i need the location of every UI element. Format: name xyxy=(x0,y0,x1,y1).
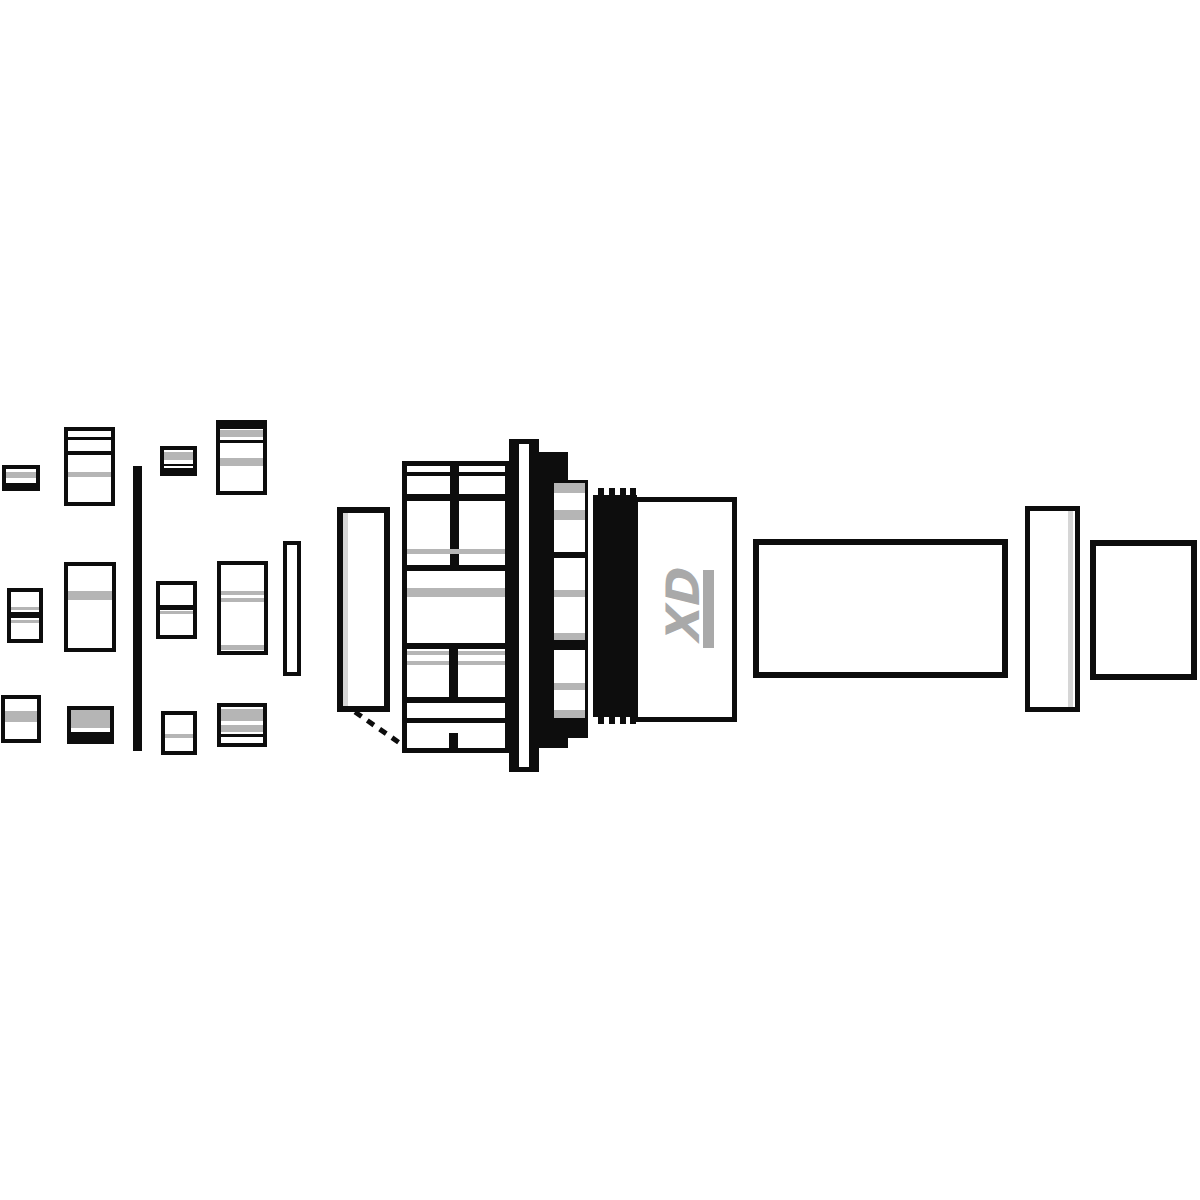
pawl-piece-row2-col1 xyxy=(7,588,43,643)
flange-disc xyxy=(509,439,539,772)
xd-logo-text: XD xyxy=(656,568,710,644)
spline-ratchet-ring xyxy=(539,452,588,748)
pawl-piece-row3-col3 xyxy=(161,711,197,755)
pawl-piece-row2-col4 xyxy=(217,561,268,655)
spacer-ring xyxy=(1025,506,1080,712)
pawl-piece-row3-col4 xyxy=(217,703,267,747)
axle-spacer-tube xyxy=(753,539,1008,678)
thin-washer-plate xyxy=(283,541,301,676)
xd-driver-body: XD xyxy=(633,497,737,722)
pawl-piece-row1-col2 xyxy=(64,427,115,506)
pawl-piece-row2-col3 xyxy=(156,581,197,639)
end-cap xyxy=(1090,540,1197,680)
ratchet-housing xyxy=(402,461,510,753)
pawl-piece-row1-col3 xyxy=(160,446,197,476)
pawl-piece-row1-col4 xyxy=(216,420,267,495)
seal-washer-tall xyxy=(337,507,390,712)
leaf-spring-bar xyxy=(133,466,142,751)
rubber-seal-ring xyxy=(593,488,637,724)
pawl-piece-row1-col1 xyxy=(2,465,40,491)
pawl-piece-row2-col2 xyxy=(64,562,116,652)
thread-guide-dashed-line xyxy=(355,712,404,746)
exploded-parts-diagram: XD xyxy=(0,0,1200,1200)
pawl-piece-row3-col1 xyxy=(1,695,41,743)
pawl-piece-row3-col2 xyxy=(67,706,114,744)
diagram-canvas: XD xyxy=(0,0,1200,1200)
